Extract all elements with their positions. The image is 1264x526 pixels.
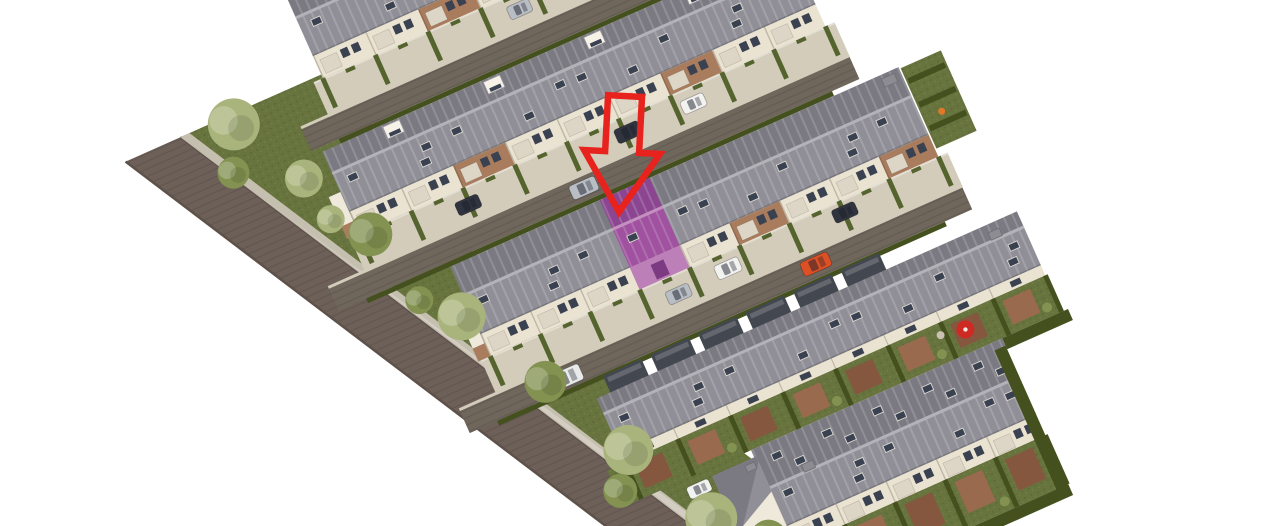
- scene-root: [0, 0, 1264, 526]
- aerial-render-canvas: Aerial 3D rendering of a terraced townho…: [0, 0, 1264, 526]
- estate-render-image: Aerial 3D rendering of a terraced townho…: [0, 0, 1264, 526]
